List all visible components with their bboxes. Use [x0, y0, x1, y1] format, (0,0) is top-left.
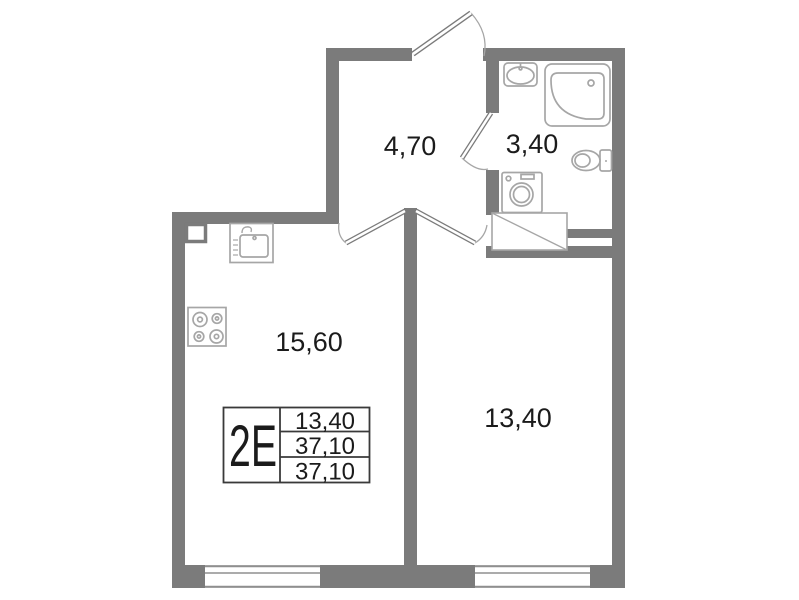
fixtures	[188, 63, 612, 346]
room-area-label-bathroom: 3,40	[506, 129, 559, 159]
unit-spec-row-2: 37,10	[295, 433, 355, 460]
window-kitchen	[205, 566, 320, 588]
unit-spec-row-1: 13,40	[295, 408, 355, 435]
washing-machine-icon	[502, 173, 542, 213]
kitchen-door-arc	[339, 223, 346, 243]
corner-bathtub-icon	[545, 64, 610, 126]
bathroom-sink-icon	[504, 63, 537, 86]
duct-hatch-icon	[492, 213, 567, 250]
toilet-icon	[572, 150, 612, 171]
unit-spec-row-3: 37,10	[295, 459, 355, 486]
wall-kitchen-top	[172, 212, 339, 224]
bedroom-door	[416, 211, 487, 243]
window-bedroom	[475, 566, 590, 588]
kitchen-sink-icon	[230, 224, 273, 263]
bedroom-door-arc	[475, 225, 487, 243]
wall-duct-ledge	[567, 229, 612, 238]
entry-door-arc	[471, 13, 485, 56]
wall-bath-divider-upper	[486, 58, 499, 113]
bathroom-door-arc	[462, 158, 488, 170]
room-area-label-hallway: 4,70	[384, 131, 437, 161]
wall-bath-divider-lower	[486, 170, 499, 215]
floor-plan-svg: 4,70 3,40 15,60 13,40 2E 13,40 37,10 37,…	[0, 0, 799, 600]
corner-shaft-icon	[187, 225, 206, 242]
wall-hallway-left	[326, 48, 339, 222]
bathroom-door	[462, 113, 491, 170]
wall-top-right	[483, 48, 625, 61]
stove-icon	[188, 308, 226, 347]
entry-door	[413, 13, 485, 56]
floor-plan: 4,70 3,40 15,60 13,40 2E 13,40 37,10 37,…	[0, 0, 799, 600]
unit-type-label: 2E	[229, 414, 277, 479]
wall-left	[172, 213, 185, 588]
kitchen-door	[339, 211, 405, 243]
room-area-label-bedroom: 13,40	[484, 403, 552, 433]
wall-room-divider	[404, 208, 417, 568]
room-area-label-kitchen-living: 15,60	[275, 327, 343, 357]
wall-right	[612, 48, 625, 588]
